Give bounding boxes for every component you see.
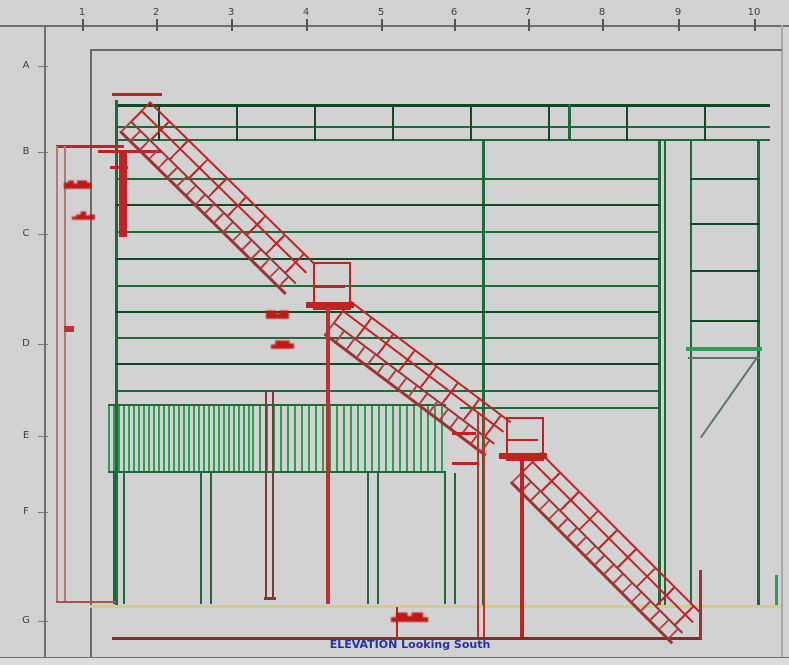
column-line	[568, 104, 571, 140]
stair-landing-midrail	[508, 439, 538, 441]
elevation-note-annotation: ██▅██	[266, 311, 288, 319]
column-line	[690, 139, 692, 605]
floor-beam	[115, 390, 660, 392]
grid-row-label: G	[18, 615, 34, 627]
elevation-note-annotation: ▄███▅	[271, 341, 293, 349]
grid-column-tick	[231, 19, 233, 31]
grid-column-tick	[156, 19, 158, 31]
truss-mid-chord	[115, 126, 770, 128]
truss-vertical-tick	[548, 104, 550, 141]
grid-row-tick	[38, 436, 48, 437]
red-dim-tick	[452, 462, 478, 465]
stair-treads	[512, 473, 682, 643]
bright-green-edge-mark	[775, 575, 778, 605]
grid-column-label: 9	[670, 7, 686, 19]
stair-landing-floor	[306, 302, 354, 308]
truss-vertical-tick	[704, 104, 706, 141]
floor-beam	[115, 258, 660, 260]
truss-vertical-tick	[626, 104, 628, 141]
grid-column-label: 5	[373, 7, 389, 19]
landing-support-post	[520, 458, 524, 637]
lower-column-brown	[265, 390, 267, 598]
right-bay-beam	[690, 270, 760, 272]
grid-row-tick	[38, 234, 48, 235]
lower-column-pair	[113, 473, 125, 604]
cladding-top-edge	[108, 404, 446, 406]
left-enclosure-side	[56, 146, 58, 603]
grid-column-label: 4	[298, 7, 314, 19]
cladding-hatch-right	[252, 405, 446, 473]
lower-column-pair	[444, 473, 456, 604]
right-bay-beam	[690, 223, 760, 225]
grid-row-label: D	[18, 338, 34, 350]
truss-vertical-tick	[470, 104, 472, 141]
red-dim-tick	[452, 432, 476, 435]
lower-column-pair	[367, 473, 379, 604]
grid-row-label: F	[18, 506, 34, 518]
lower-column-brown-base	[264, 597, 276, 600]
red-column-pair	[483, 412, 485, 637]
bottom-note-annotation: ▄██▅██▄	[391, 614, 427, 622]
left-enclosure-side	[64, 146, 66, 603]
red-dim-tick	[396, 607, 398, 638]
stair-top-tick	[110, 166, 128, 169]
column-line	[658, 139, 661, 605]
grid-row-tick	[38, 344, 48, 345]
stair-flight	[510, 452, 702, 644]
landing-support-post	[326, 307, 330, 604]
stair-flight	[119, 101, 315, 295]
grid-column-tick	[82, 19, 84, 31]
truss-vertical-tick	[314, 104, 316, 141]
left-enclosure-mark	[64, 326, 74, 332]
left-enclosure-bottom	[56, 601, 116, 603]
grid-column-label: 6	[446, 7, 462, 19]
cladding-bottom-edge	[108, 471, 446, 473]
grid-column-label: 10	[746, 7, 762, 19]
grid-column-tick	[528, 19, 530, 31]
truss-bottom-chord	[115, 139, 770, 141]
stair-top-post	[119, 150, 127, 237]
grid-row-tick	[38, 66, 48, 67]
right-bay-beam	[690, 320, 760, 322]
truss-vertical-tick	[236, 104, 238, 141]
right-bay-beam	[688, 357, 760, 359]
grid-column-label: 1	[74, 7, 90, 19]
truss-top-chord	[115, 104, 770, 107]
floor-beam	[115, 285, 660, 287]
elevation-note-annotation: ▃▅█▄▅	[72, 212, 94, 220]
grid-row-label: B	[18, 146, 34, 158]
grid-row-tick	[38, 621, 48, 622]
floor-beam	[115, 311, 660, 313]
grid-column-label: 8	[594, 7, 610, 19]
left-enclosure-top	[56, 145, 124, 148]
grid-column-tick	[454, 19, 456, 31]
structure-layer	[0, 0, 789, 665]
column-line	[664, 139, 666, 605]
grid-row-label: E	[18, 430, 34, 442]
stair-rail-posts	[131, 102, 314, 282]
grid-column-label: 2	[148, 7, 164, 19]
cladding-hatch-left	[108, 405, 252, 473]
grid-column-tick	[306, 19, 308, 31]
lower-column-brown	[272, 390, 274, 598]
elevation-drawing-sheet: ▆█▅██▆ ▃▅█▄▅ ██▅██ ▄███▅ ▄██▅██▄ ELEVATI…	[0, 0, 789, 665]
drawing-title-caption: ELEVATION Looking South	[318, 638, 502, 651]
stair-base-post	[699, 570, 702, 639]
lower-column-pair	[200, 473, 212, 604]
grid-column-tick	[602, 19, 604, 31]
grid-column-label: 7	[520, 7, 536, 19]
truss-vertical-tick	[392, 104, 394, 141]
grid-row-tick	[38, 512, 48, 513]
stair-landing-midrail	[315, 286, 345, 288]
column-line	[757, 139, 760, 605]
diagonal-brace	[700, 356, 759, 438]
right-bay-beam	[690, 178, 760, 180]
stair-top-rail	[112, 93, 162, 96]
grid-row-tick	[38, 152, 48, 153]
grid-row-label: A	[18, 60, 34, 72]
right-bay-beam-thick	[686, 347, 762, 351]
elevation-note-annotation: ▆█▅██▆	[64, 181, 90, 189]
grid-column-label: 3	[223, 7, 239, 19]
grid-row-label: C	[18, 228, 34, 240]
grid-column-tick	[381, 19, 383, 31]
grid-column-tick	[678, 19, 680, 31]
grid-column-tick	[754, 19, 756, 31]
stair-treads	[121, 122, 295, 293]
red-column-pair	[477, 412, 479, 637]
floor-beam	[115, 231, 660, 233]
